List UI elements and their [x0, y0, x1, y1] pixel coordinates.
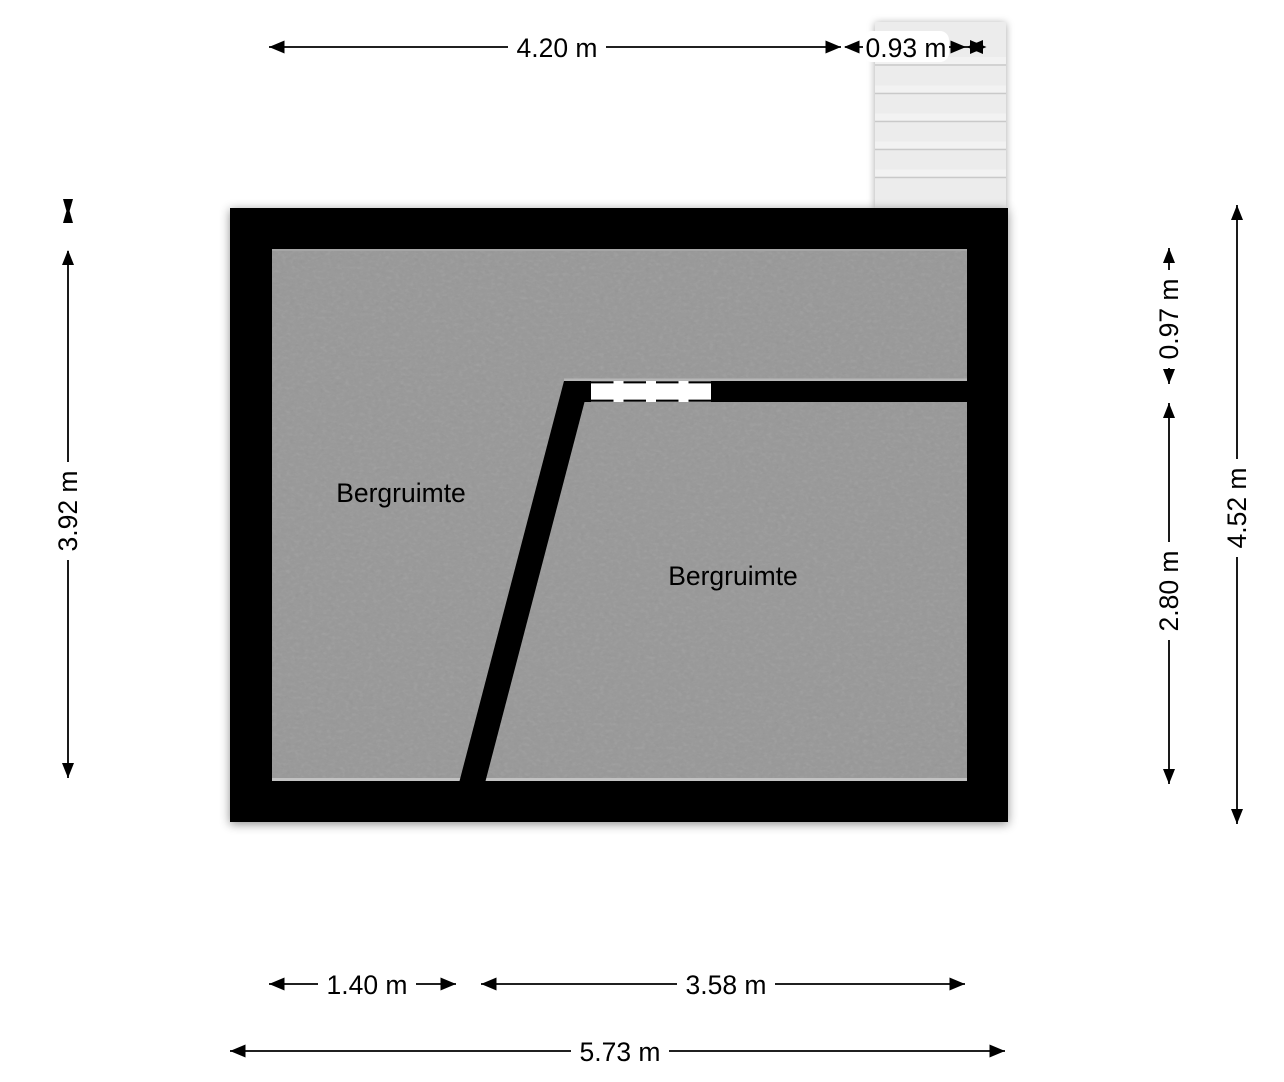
- svg-text:3.92 m: 3.92 m: [53, 470, 83, 551]
- svg-text:1.40 m: 1.40 m: [326, 970, 407, 1000]
- svg-text:Bergruimte: Bergruimte: [336, 478, 466, 508]
- svg-text:3.58 m: 3.58 m: [685, 970, 766, 1000]
- svg-text:4.20 m: 4.20 m: [516, 33, 597, 63]
- svg-text:2.80 m: 2.80 m: [1154, 550, 1184, 631]
- svg-text:4.52 m: 4.52 m: [1222, 467, 1252, 548]
- svg-text:0.93 m: 0.93 m: [865, 33, 946, 63]
- svg-text:Bergruimte: Bergruimte: [668, 561, 798, 591]
- svg-text:0.97 m: 0.97 m: [1154, 278, 1184, 359]
- svg-text:5.73 m: 5.73 m: [579, 1037, 660, 1067]
